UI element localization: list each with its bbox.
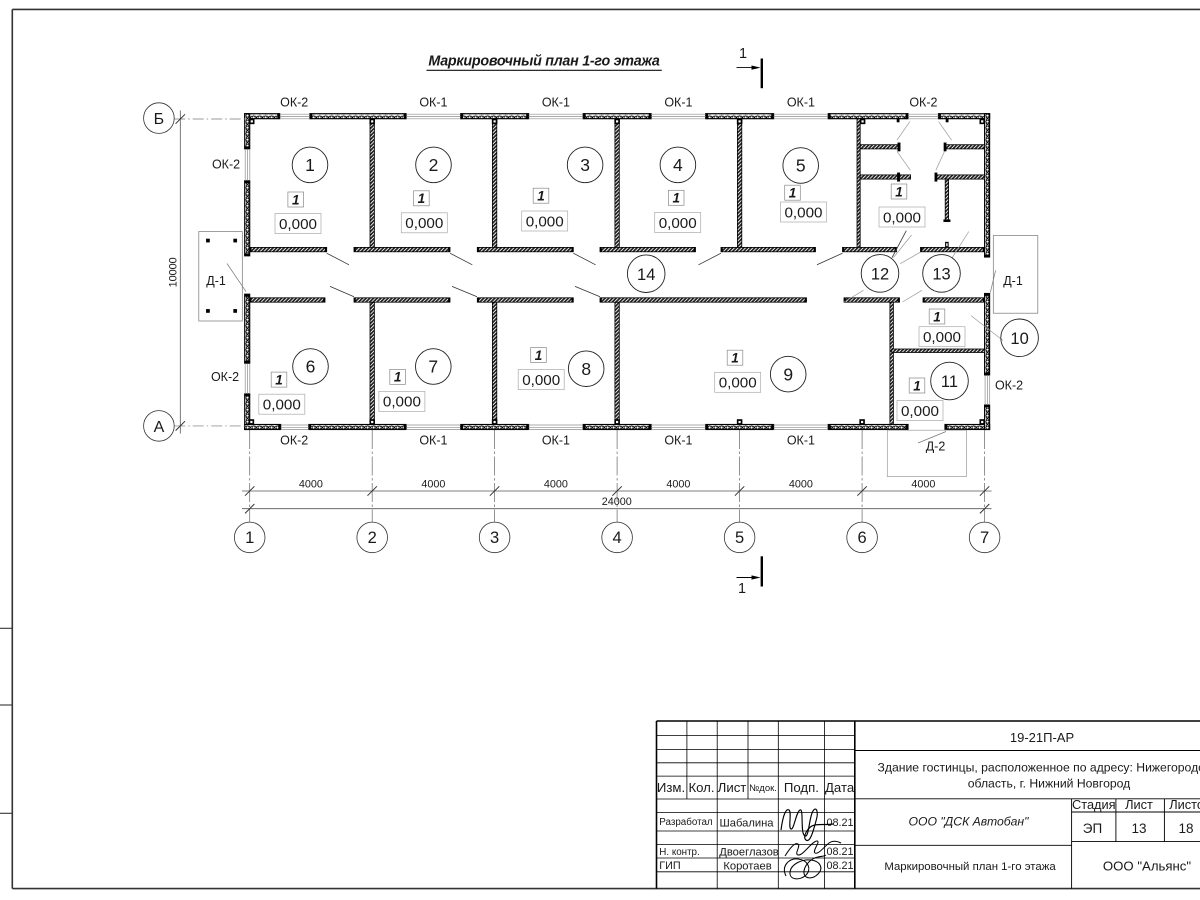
svg-text:1: 1 [895, 184, 903, 199]
svg-text:Н. контр.: Н. контр. [659, 847, 699, 858]
svg-text:6: 6 [306, 357, 316, 377]
svg-text:1: 1 [537, 189, 545, 204]
svg-text:0,000: 0,000 [923, 329, 961, 346]
svg-text:1: 1 [245, 529, 254, 547]
svg-text:6: 6 [858, 529, 867, 547]
svg-text:Разработал: Разработал [659, 817, 713, 828]
svg-text:ОК-1: ОК-1 [664, 434, 692, 448]
svg-text:ОК-2: ОК-2 [995, 379, 1023, 393]
svg-text:0,000: 0,000 [522, 372, 560, 389]
svg-text:10000: 10000 [168, 257, 180, 287]
svg-text:0,000: 0,000 [719, 375, 757, 392]
svg-text:2: 2 [368, 529, 377, 547]
svg-text:1: 1 [275, 372, 283, 387]
svg-text:0,000: 0,000 [383, 394, 421, 411]
svg-text:Маркировочный план 1-го этажа: Маркировочный план 1-го этажа [884, 861, 1056, 873]
svg-text:ОК-2: ОК-2 [211, 370, 239, 384]
svg-text:4000: 4000 [911, 478, 935, 490]
svg-text:ООО "Альянс": ООО "Альянс" [1103, 859, 1191, 874]
svg-text:Лист: Лист [1125, 797, 1153, 812]
svg-text:12: 12 [871, 266, 889, 284]
svg-text:08.21: 08.21 [826, 817, 853, 829]
svg-text:Листов: Листов [1169, 797, 1200, 812]
svg-text:0,000: 0,000 [659, 215, 697, 232]
svg-text:ОК-2: ОК-2 [909, 96, 937, 110]
svg-text:Д-1: Д-1 [1003, 274, 1023, 288]
svg-text:Шабалина: Шабалина [719, 818, 774, 830]
svg-text:0,000: 0,000 [784, 204, 822, 221]
svg-text:4000: 4000 [299, 478, 323, 490]
svg-text:1: 1 [738, 581, 746, 597]
svg-text:4: 4 [613, 529, 622, 547]
svg-text:13: 13 [1131, 821, 1146, 836]
svg-text:1: 1 [535, 348, 543, 363]
svg-text:4000: 4000 [666, 478, 690, 490]
svg-text:1: 1 [292, 192, 300, 207]
svg-text:2: 2 [429, 155, 439, 175]
svg-text:Двоеглазов: Двоеглазов [719, 847, 779, 859]
svg-text:Маркировочный план 1-го этажа: Маркировочный план 1-го этажа [428, 54, 660, 70]
svg-text:№док.: №док. [749, 783, 777, 794]
svg-text:0,000: 0,000 [279, 216, 317, 233]
svg-text:Лист: Лист [718, 780, 747, 795]
svg-text:5: 5 [796, 156, 806, 176]
svg-text:Коротаев: Коротаев [723, 860, 771, 872]
svg-text:0,000: 0,000 [405, 215, 443, 232]
svg-text:3: 3 [490, 529, 499, 547]
svg-text:Стадия: Стадия [1072, 797, 1116, 812]
svg-text:1: 1 [418, 191, 426, 206]
svg-text:11: 11 [941, 373, 958, 391]
svg-text:4: 4 [673, 155, 683, 175]
svg-text:0,000: 0,000 [901, 403, 939, 420]
svg-text:ОК-2: ОК-2 [280, 434, 308, 448]
svg-text:13: 13 [932, 266, 950, 284]
svg-text:ГИП: ГИП [659, 860, 680, 872]
svg-text:1: 1 [789, 186, 797, 201]
svg-text:0,000: 0,000 [526, 213, 564, 230]
svg-text:7: 7 [428, 357, 438, 377]
svg-text:ОК-2: ОК-2 [212, 158, 240, 172]
svg-text:9: 9 [783, 364, 793, 384]
svg-text:7: 7 [980, 529, 989, 547]
svg-text:ОК-1: ОК-1 [542, 434, 570, 448]
svg-text:1: 1 [394, 370, 402, 385]
svg-text:4000: 4000 [544, 478, 568, 490]
svg-text:Подп.: Подп. [784, 780, 819, 795]
svg-text:ОК-1: ОК-1 [419, 434, 447, 448]
svg-text:ЭП: ЭП [1083, 821, 1102, 836]
svg-text:1: 1 [305, 155, 315, 175]
svg-text:Б: Б [154, 111, 165, 128]
svg-text:19-21П-АР: 19-21П-АР [1010, 730, 1074, 745]
svg-text:ОК-1: ОК-1 [664, 96, 692, 110]
svg-text:1: 1 [672, 191, 680, 206]
svg-text:8: 8 [581, 359, 591, 379]
svg-text:08.21: 08.21 [826, 846, 853, 858]
svg-text:Кол.: Кол. [688, 780, 714, 795]
svg-text:1: 1 [731, 351, 739, 366]
svg-text:Изм.: Изм. [657, 780, 685, 795]
svg-text:10: 10 [1010, 330, 1028, 348]
svg-text:18: 18 [1178, 821, 1193, 836]
svg-text:ОК-1: ОК-1 [419, 96, 447, 110]
svg-text:4000: 4000 [789, 478, 813, 490]
svg-text:4000: 4000 [421, 478, 445, 490]
svg-text:1: 1 [913, 378, 921, 393]
svg-text:ОК-2: ОК-2 [280, 96, 308, 110]
svg-text:08.21: 08.21 [826, 860, 853, 872]
svg-text:0,000: 0,000 [263, 397, 301, 414]
svg-text:0,000: 0,000 [883, 209, 921, 226]
svg-text:1: 1 [739, 46, 747, 62]
svg-text:Дата: Дата [825, 780, 855, 795]
svg-text:ООО "ДСК Автобан": ООО "ДСК Автобан" [909, 815, 1030, 829]
svg-text:24000: 24000 [602, 496, 632, 508]
svg-text:Д-2: Д-2 [926, 440, 946, 454]
svg-text:ОК-1: ОК-1 [787, 434, 815, 448]
svg-text:ОК-1: ОК-1 [787, 96, 815, 110]
svg-text:3: 3 [580, 155, 590, 175]
svg-text:Д-1: Д-1 [206, 274, 226, 288]
svg-text:1: 1 [933, 309, 941, 324]
svg-text:Здание гостинцы, расположенное: Здание гостинцы, расположенное по адресу… [878, 761, 1200, 775]
svg-text:ОК-1: ОК-1 [542, 96, 570, 110]
svg-text:область, г. Нижний Новгород: область, г. Нижний Новгород [968, 776, 1131, 790]
svg-text:5: 5 [735, 529, 744, 547]
svg-text:14: 14 [637, 266, 655, 284]
svg-text:А: А [154, 419, 165, 436]
